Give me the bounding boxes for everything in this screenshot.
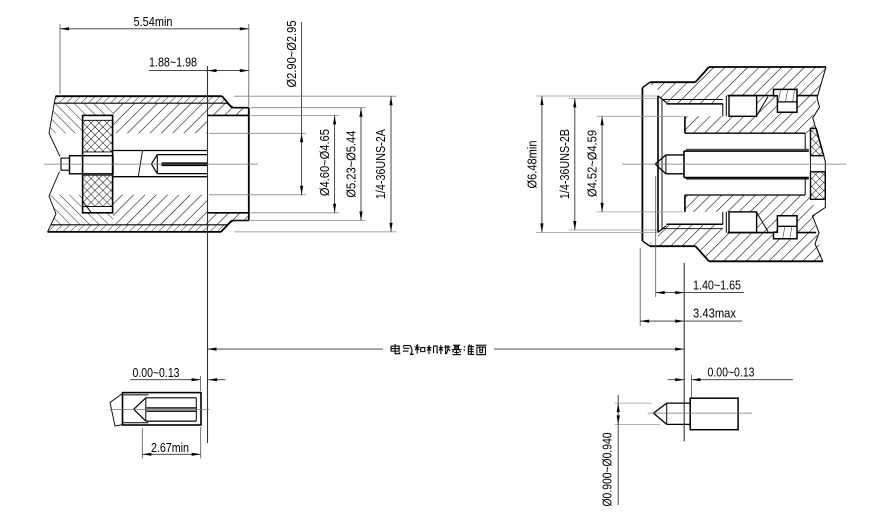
- svg-text:0.00~0.13: 0.00~0.13: [708, 365, 755, 380]
- svg-text:1/4-36UNS-2B: 1/4-36UNS-2B: [557, 129, 572, 199]
- svg-text:Ø0.900~Ø0.940: Ø0.900~Ø0.940: [600, 433, 615, 507]
- svg-text:Ø6.48min: Ø6.48min: [524, 141, 539, 189]
- svg-text:Ø4.60~Ø4.65: Ø4.60~Ø4.65: [317, 129, 332, 196]
- svg-text:2.67min: 2.67min: [151, 440, 189, 455]
- svg-text:Ø2.90~Ø2.95: Ø2.90~Ø2.95: [284, 21, 299, 88]
- svg-text:5.54min: 5.54min: [134, 14, 173, 29]
- svg-text:1/4-36UNS-2A: 1/4-36UNS-2A: [373, 129, 388, 199]
- svg-text:3.43max: 3.43max: [693, 306, 736, 321]
- svg-text:Ø5.23~Ø5.44: Ø5.23~Ø5.44: [344, 131, 359, 198]
- svg-text:0.00~0.13: 0.00~0.13: [133, 365, 180, 380]
- svg-text:1.88~1.98: 1.88~1.98: [149, 55, 197, 70]
- svg-text:1.40~1.65: 1.40~1.65: [693, 277, 741, 292]
- svg-text:Ø4.52~Ø4.59: Ø4.52~Ø4.59: [585, 130, 600, 197]
